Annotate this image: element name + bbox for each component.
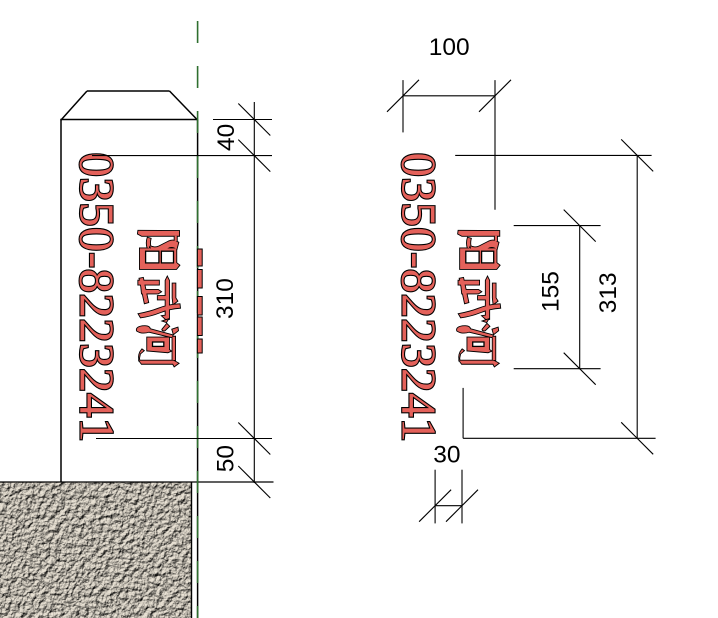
svg-text:50: 50 (213, 445, 240, 472)
svg-text:0350-8223241: 0350-8223241 (70, 153, 125, 443)
svg-text:313: 313 (595, 272, 622, 313)
svg-text:310: 310 (212, 278, 239, 319)
svg-text:0350-8223241: 0350-8223241 (392, 153, 447, 443)
svg-text:30: 30 (433, 442, 460, 469)
svg-text:100: 100 (429, 34, 470, 61)
svg-text:40: 40 (213, 124, 240, 151)
svg-text:155: 155 (538, 271, 565, 312)
